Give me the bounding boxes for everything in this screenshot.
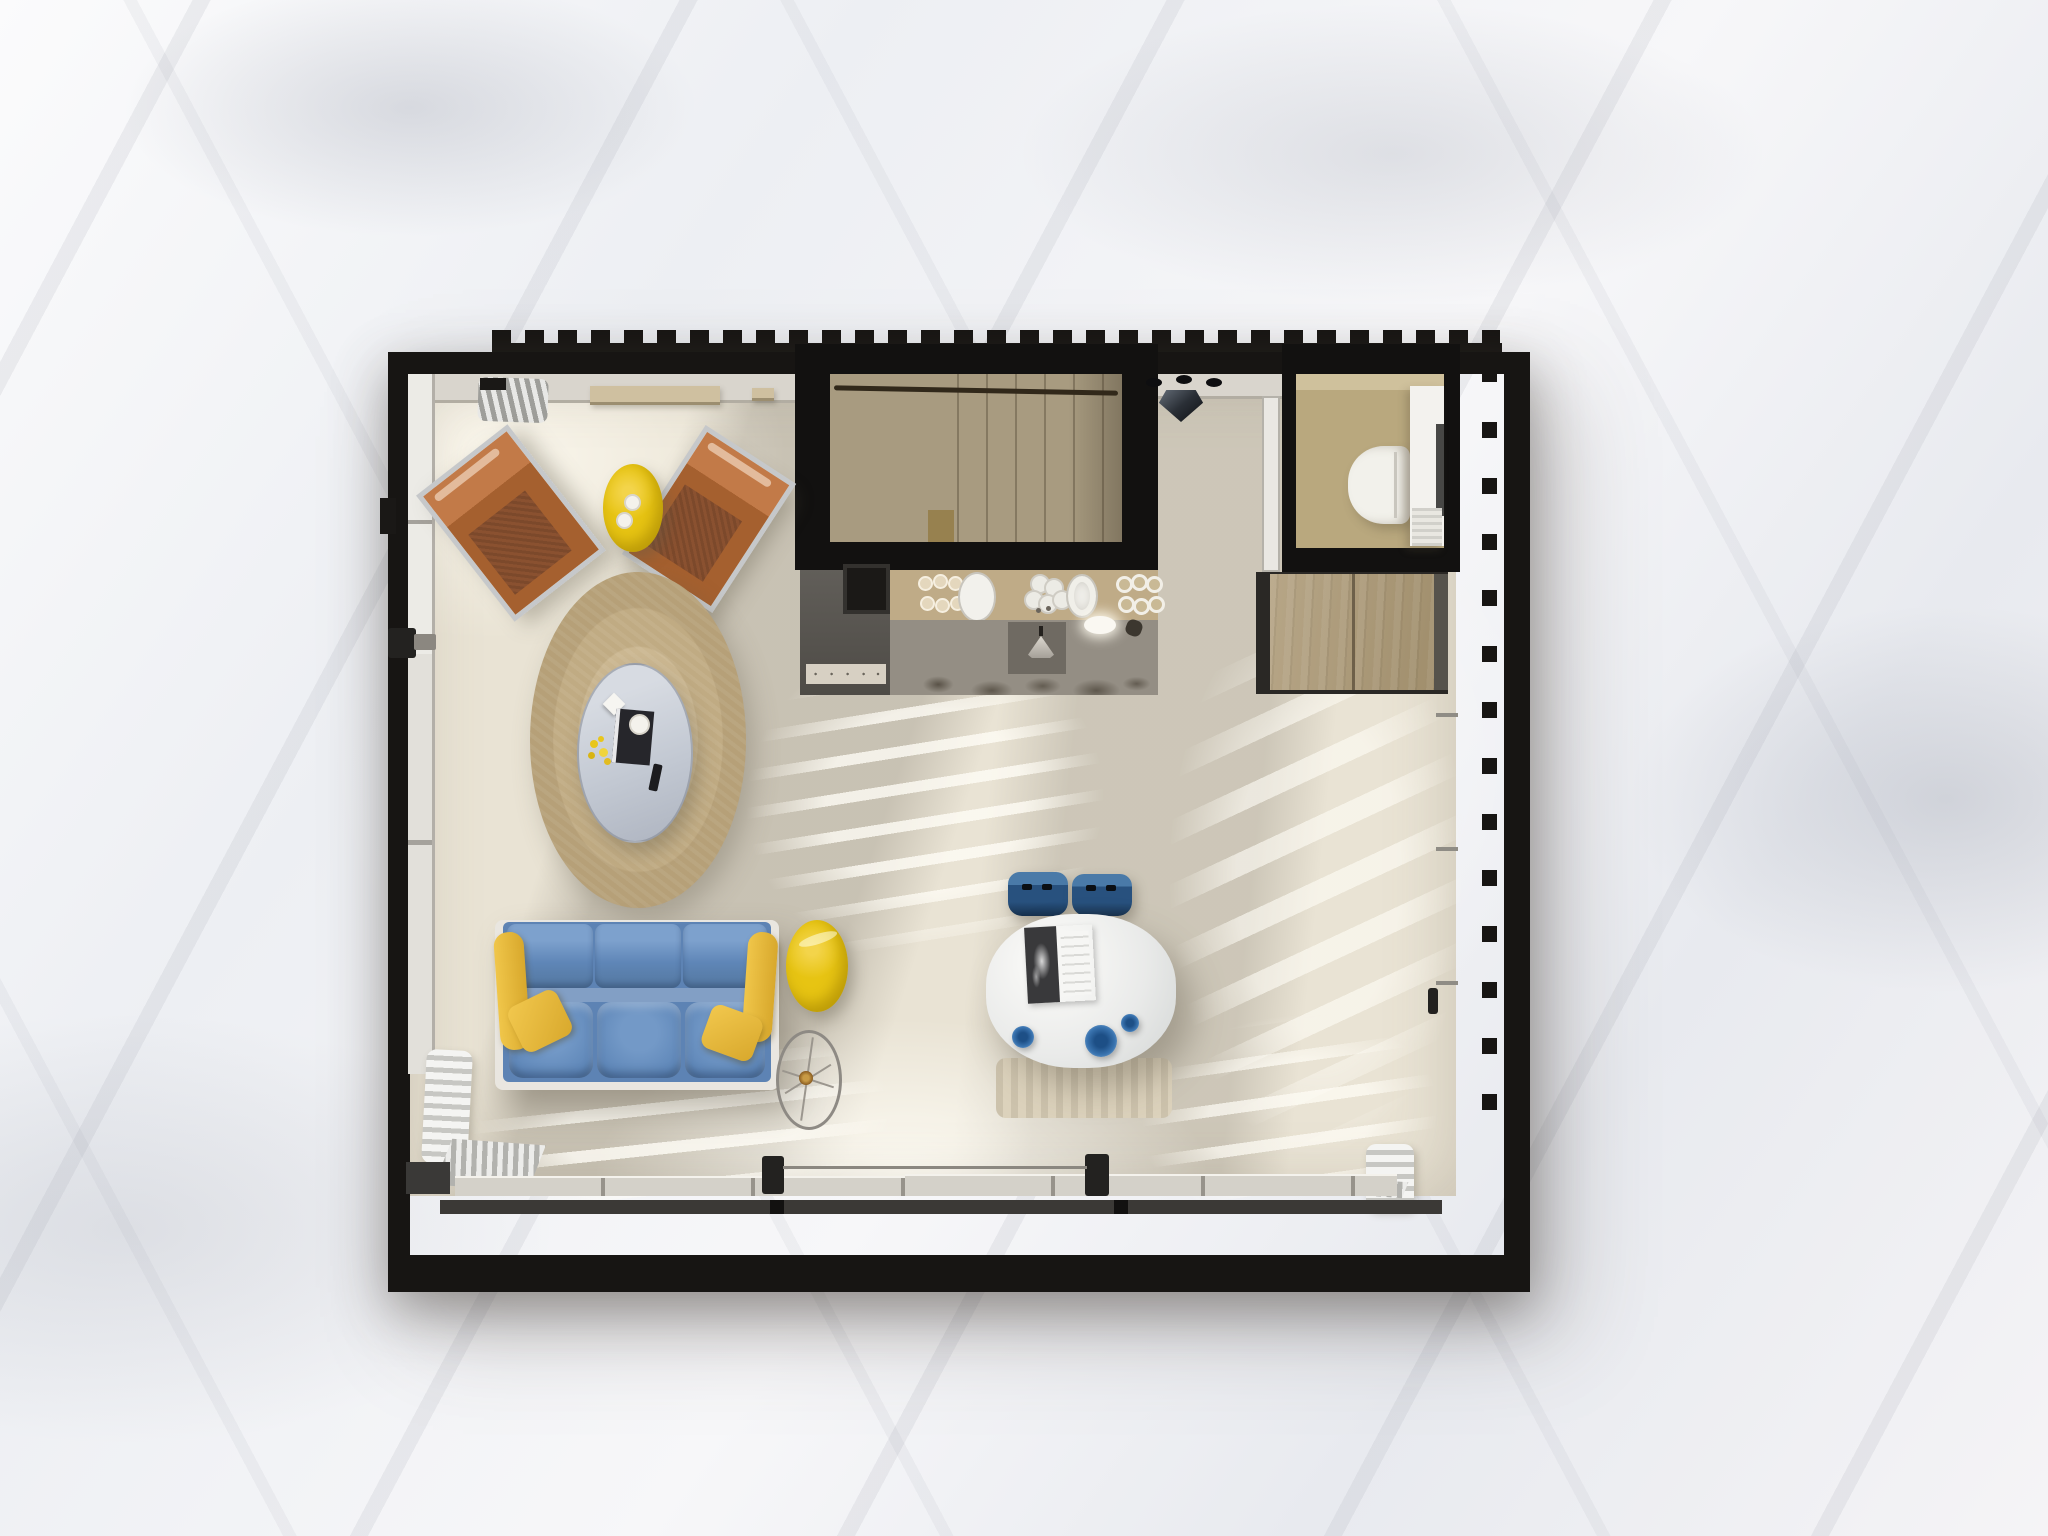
left-door-handle-grip: [414, 634, 436, 650]
left-wall-bracket: [380, 498, 396, 534]
sofa-back-cushion-2: [595, 924, 681, 988]
bathroom-door-leaf: [1262, 396, 1280, 572]
kitchen-basin-2: [1066, 574, 1098, 618]
counter-bun-2: [933, 574, 948, 589]
stair-straight-treads: [930, 374, 1122, 542]
counter-cutlery-dot-1: [1036, 608, 1041, 613]
cup-2: [616, 512, 633, 529]
chair2-slot-1: [1086, 885, 1096, 891]
range-hood: [843, 564, 890, 614]
bottom-window-sill-right: [905, 1174, 1397, 1196]
stair-winder-fan: [830, 374, 942, 542]
vanity-mirror-recess: [1436, 424, 1444, 516]
window-handle-2: [1085, 1154, 1109, 1196]
open-magazine: [1024, 924, 1096, 1003]
chair1-slot-1: [1022, 884, 1032, 890]
table-candle: [629, 714, 650, 735]
sofa-seat-cushion-2: [597, 1002, 681, 1078]
wardrobe-side-panel: [1434, 574, 1448, 690]
wall-shelf: [590, 386, 720, 405]
toilet: [1348, 446, 1410, 524]
spot-light-1: [1146, 378, 1162, 387]
lounge-chair-left-seat: [468, 491, 572, 595]
pendant-cord: [1039, 626, 1043, 636]
flower-4: [598, 736, 604, 742]
left-door-handle: [388, 628, 416, 658]
blue-plate-3: [1121, 1014, 1139, 1032]
blue-plate-1: [1012, 1026, 1034, 1048]
sliding-door-rail: [783, 1166, 1087, 1169]
kitchen-sink: [958, 572, 996, 622]
blue-plate-2: [1085, 1025, 1117, 1057]
bottom-window-sill-left: [455, 1176, 905, 1196]
flower-1: [590, 740, 598, 748]
stair-newel-post: [928, 510, 954, 542]
counter-bun-5: [935, 598, 950, 613]
toilet-seat-line: [1394, 452, 1397, 518]
chair1-slot-2: [1042, 884, 1052, 890]
wire-side-table: [776, 1030, 842, 1130]
magazine-left-page: [1024, 926, 1060, 1004]
left-window-glazing: [408, 374, 435, 1074]
wall-shelf-tab: [752, 388, 774, 401]
right-door-handle: [1428, 988, 1438, 1014]
fruit-bowl: [1084, 616, 1116, 634]
spot-light-3: [1206, 378, 1222, 387]
wardrobe-door-divider: [1352, 574, 1355, 690]
magazine-right-page: [1056, 924, 1096, 1002]
glass-3: [1146, 576, 1163, 593]
flower-5: [604, 758, 611, 765]
flower-3: [588, 752, 595, 759]
spot-light-2: [1176, 375, 1192, 384]
counter-cutlery-dot-2: [1046, 606, 1051, 611]
cup-1: [624, 494, 641, 511]
rack-bracket: [480, 378, 506, 390]
dining-chair-1: [1008, 872, 1068, 916]
window-handle-1: [762, 1156, 784, 1194]
floor-plan-render: [0, 0, 2048, 1536]
right-glass-door: [1436, 700, 1458, 1115]
wire-table-hub: [799, 1071, 813, 1085]
counter-bun-4: [920, 596, 935, 611]
oven-knob-strip: [806, 664, 886, 684]
chair2-slot-2: [1106, 885, 1116, 891]
flower-2: [599, 748, 608, 757]
window-corner-frame: [406, 1162, 450, 1194]
roof-teeth-top: [492, 330, 1500, 344]
vanity-towel: [1412, 508, 1442, 546]
left-window-mullion: [408, 520, 432, 524]
left-window-mullion-2: [408, 840, 432, 845]
dining-chair-2: [1072, 874, 1132, 916]
counter-bun-1: [918, 576, 933, 591]
bottom-wall-recess: [440, 1200, 1442, 1214]
glass-6: [1148, 596, 1165, 613]
